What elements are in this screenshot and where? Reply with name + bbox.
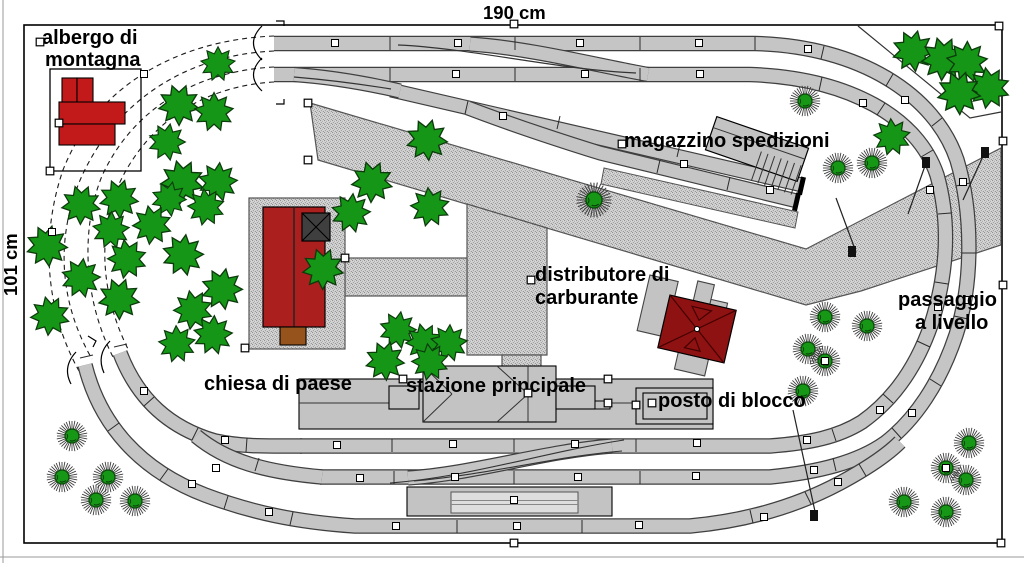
svg-text:carburante: carburante — [535, 287, 638, 309]
svg-text:albergo di: albergo di — [42, 27, 138, 49]
svg-text:101 cm: 101 cm — [0, 233, 21, 296]
svg-text:a livello: a livello — [915, 312, 988, 334]
svg-text:chiesa di paese: chiesa di paese — [204, 373, 352, 395]
svg-text:distributore di: distributore di — [535, 264, 669, 286]
svg-text:stazione principale: stazione principale — [406, 375, 586, 397]
svg-text:magazzino spedizioni: magazzino spedizioni — [624, 130, 830, 152]
svg-text:posto di blocco: posto di blocco — [658, 390, 806, 412]
svg-text:passaggio: passaggio — [898, 289, 997, 311]
svg-text:montagna: montagna — [45, 49, 141, 71]
